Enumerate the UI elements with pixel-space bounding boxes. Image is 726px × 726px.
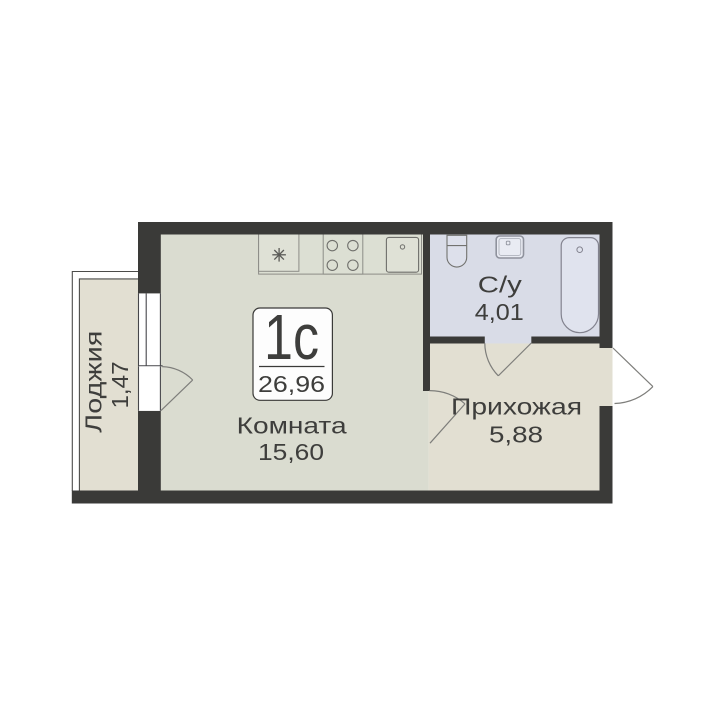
svg-text:4,01: 4,01 [475, 299, 524, 325]
svg-text:1,47: 1,47 [107, 362, 133, 409]
svg-text:5,88: 5,88 [489, 422, 543, 448]
svg-text:Комната: Комната [237, 413, 347, 439]
svg-text:С/у: С/у [478, 272, 523, 298]
svg-text:1с: 1с [264, 301, 319, 373]
svg-text:26,96: 26,96 [258, 371, 325, 397]
svg-text:15,60: 15,60 [258, 439, 324, 465]
svg-text:Лоджия: Лоджия [81, 331, 107, 433]
svg-text:Прихожая: Прихожая [451, 394, 582, 420]
